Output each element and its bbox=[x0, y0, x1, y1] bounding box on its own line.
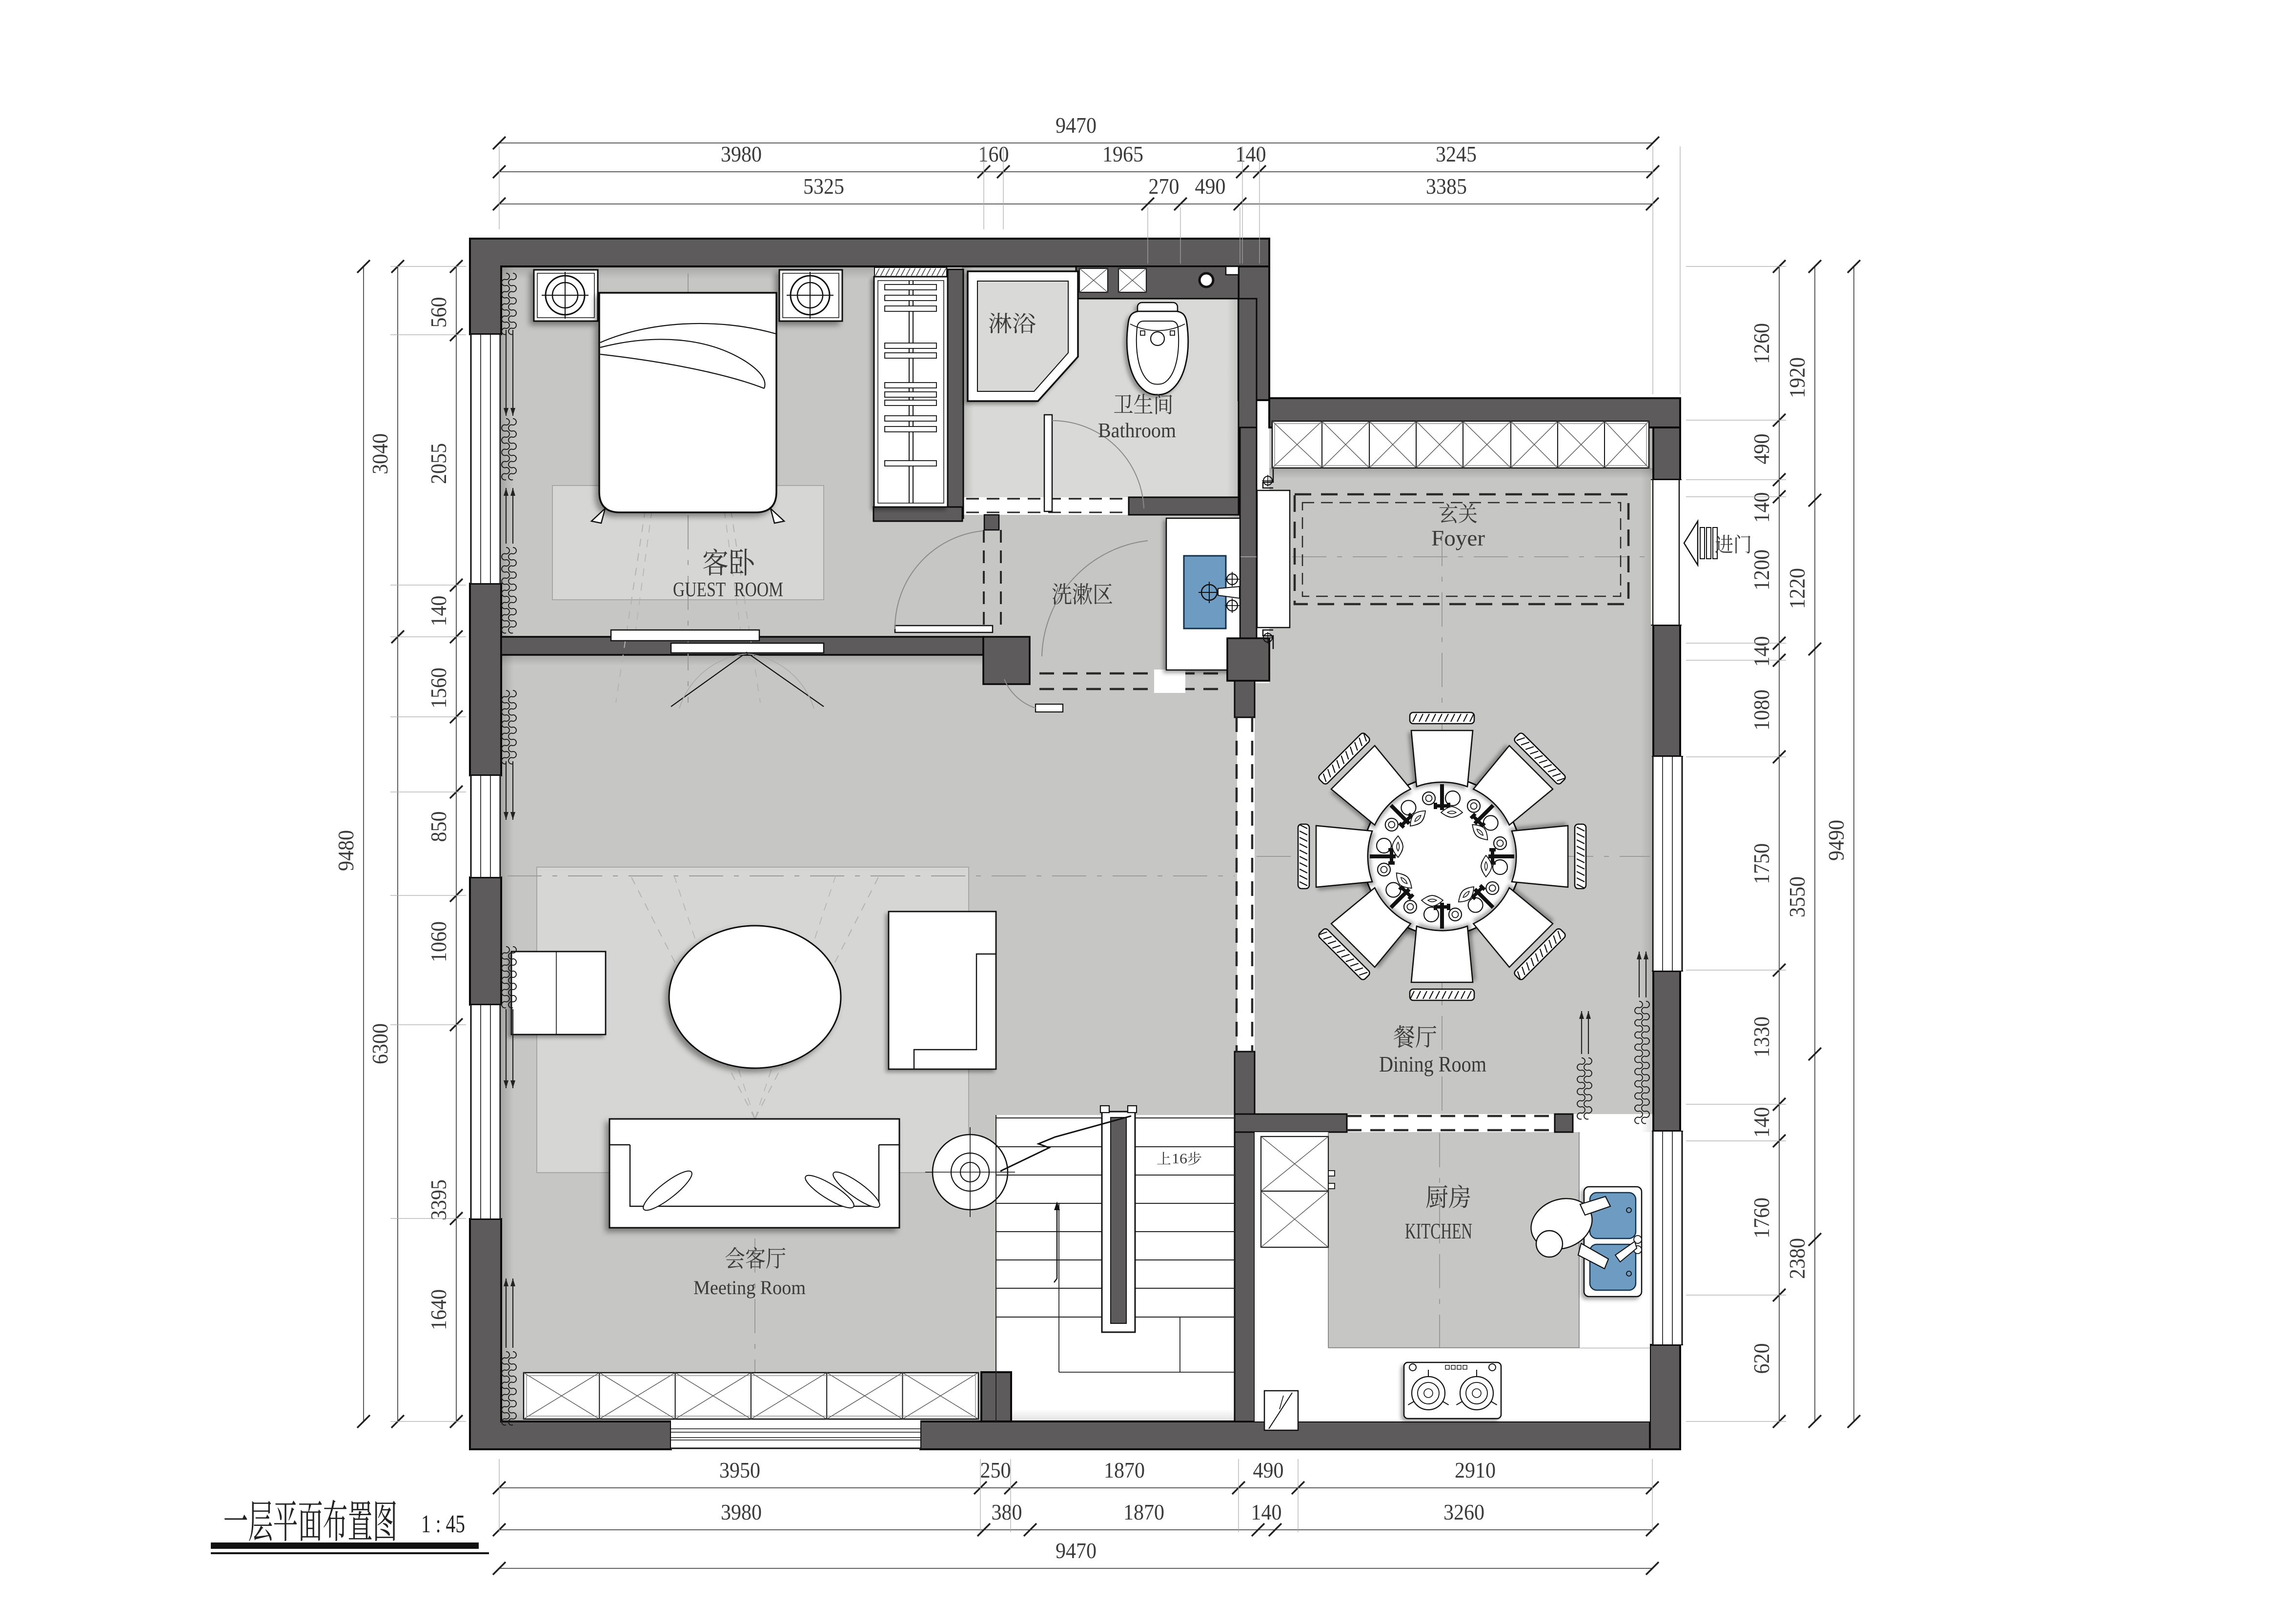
svg-text:1560: 1560 bbox=[426, 668, 451, 709]
svg-text:140: 140 bbox=[1749, 636, 1774, 667]
svg-text:3385: 3385 bbox=[1426, 174, 1467, 199]
svg-text:620: 620 bbox=[1749, 1343, 1774, 1374]
svg-text:1750: 1750 bbox=[1749, 843, 1774, 884]
svg-text:560: 560 bbox=[426, 297, 451, 328]
svg-text:3395: 3395 bbox=[426, 1179, 451, 1220]
svg-text:140: 140 bbox=[1251, 1500, 1282, 1524]
svg-text:1080: 1080 bbox=[1749, 690, 1774, 730]
svg-text:1920: 1920 bbox=[1785, 357, 1809, 398]
svg-text:Bathroom: Bathroom bbox=[1098, 420, 1176, 442]
svg-text:160: 160 bbox=[978, 142, 1009, 166]
svg-text:1330: 1330 bbox=[1749, 1016, 1774, 1057]
svg-text:140: 140 bbox=[426, 596, 451, 627]
svg-text:9490: 9490 bbox=[1824, 820, 1849, 861]
svg-text:GUEST ROOM: GUEST ROOM bbox=[673, 579, 783, 601]
svg-text:1870: 1870 bbox=[1104, 1458, 1145, 1482]
svg-text:1870: 1870 bbox=[1123, 1500, 1164, 1524]
svg-text:490: 490 bbox=[1749, 434, 1774, 465]
svg-text:1060: 1060 bbox=[426, 921, 451, 962]
svg-text:3550: 3550 bbox=[1785, 876, 1809, 917]
svg-text:1760: 1760 bbox=[1749, 1197, 1774, 1238]
svg-text:3040: 3040 bbox=[367, 433, 392, 474]
svg-text:380: 380 bbox=[992, 1500, 1022, 1524]
svg-text:3260: 3260 bbox=[1443, 1500, 1484, 1524]
svg-text:Foyer: Foyer bbox=[1431, 526, 1485, 550]
svg-text:5325: 5325 bbox=[803, 174, 844, 199]
svg-text:270: 270 bbox=[1149, 174, 1179, 199]
svg-text:1640: 1640 bbox=[426, 1289, 451, 1330]
svg-text:1 : 45: 1 : 45 bbox=[421, 1510, 465, 1538]
svg-text:9470: 9470 bbox=[1056, 1538, 1097, 1563]
svg-text:6300: 6300 bbox=[367, 1023, 392, 1064]
svg-text:9480: 9480 bbox=[333, 830, 358, 871]
svg-text:140: 140 bbox=[1749, 1107, 1774, 1138]
svg-text:250: 250 bbox=[980, 1458, 1011, 1482]
svg-text:Dining Room: Dining Room bbox=[1379, 1052, 1486, 1076]
svg-text:2910: 2910 bbox=[1455, 1458, 1496, 1482]
svg-text:Meeting Room: Meeting Room bbox=[693, 1277, 806, 1298]
svg-text:1200: 1200 bbox=[1749, 549, 1774, 590]
svg-text:9470: 9470 bbox=[1056, 113, 1097, 138]
svg-text:3245: 3245 bbox=[1436, 142, 1477, 166]
svg-text:3950: 3950 bbox=[719, 1458, 760, 1482]
svg-text:2380: 2380 bbox=[1785, 1238, 1809, 1279]
svg-text:490: 490 bbox=[1253, 1458, 1284, 1482]
svg-text:1260: 1260 bbox=[1749, 323, 1774, 364]
svg-text:1220: 1220 bbox=[1785, 568, 1809, 609]
svg-text:3980: 3980 bbox=[721, 1500, 762, 1524]
svg-text:KITCHEN: KITCHEN bbox=[1405, 1218, 1472, 1243]
svg-text:850: 850 bbox=[426, 811, 451, 842]
svg-text:3980: 3980 bbox=[721, 142, 762, 166]
svg-text:140: 140 bbox=[1236, 142, 1266, 166]
svg-text:490: 490 bbox=[1195, 174, 1226, 199]
svg-text:16: 16 bbox=[1172, 1151, 1187, 1167]
svg-text:2055: 2055 bbox=[426, 443, 451, 484]
svg-text:1965: 1965 bbox=[1102, 142, 1143, 166]
